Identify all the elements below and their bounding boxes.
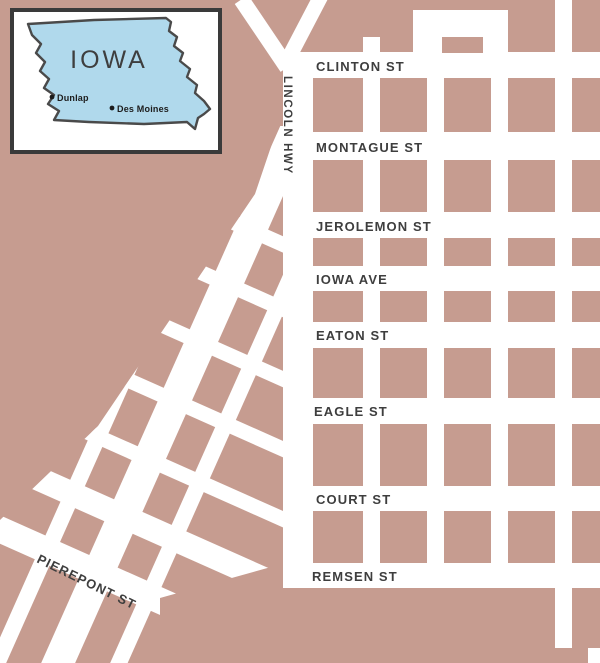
street-label-eaton: EATON ST — [316, 328, 389, 343]
des-moines-city-dot — [110, 106, 115, 111]
dunlap-city-label: Dunlap — [57, 93, 89, 103]
street-label-lincoln-hwy: LINCOLN HWY — [281, 76, 293, 175]
road-vertical-2 — [427, 10, 444, 588]
street-label-court: COURT ST — [316, 492, 391, 507]
street-label-remsen: REMSEN ST — [312, 569, 398, 584]
road-vertical-4 — [555, 0, 572, 648]
road-vertical-3 — [491, 10, 508, 588]
iowa-inset: IOWA Dunlap Des Moines — [10, 8, 222, 154]
street-label-clinton: CLINTON ST — [316, 59, 405, 74]
iowa-state-label: IOWA — [70, 46, 148, 74]
dunlap-city-dot — [50, 95, 55, 100]
map-canvas: CLINTON ST MONTAGUE ST JEROLEMON ST IOWA… — [0, 0, 600, 663]
road-corner-notch — [588, 648, 600, 663]
street-label-jerolemon: JEROLEMON ST — [316, 219, 432, 234]
iowa-inset-graphic: IOWA Dunlap Des Moines — [14, 12, 218, 150]
street-label-montague: MONTAGUE ST — [316, 140, 423, 155]
street-label-eagle: EAGLE ST — [314, 404, 388, 419]
street-label-iowa-ave: IOWA AVE — [316, 272, 388, 287]
des-moines-city-label: Des Moines — [117, 104, 169, 114]
block-top-notch — [442, 37, 483, 53]
